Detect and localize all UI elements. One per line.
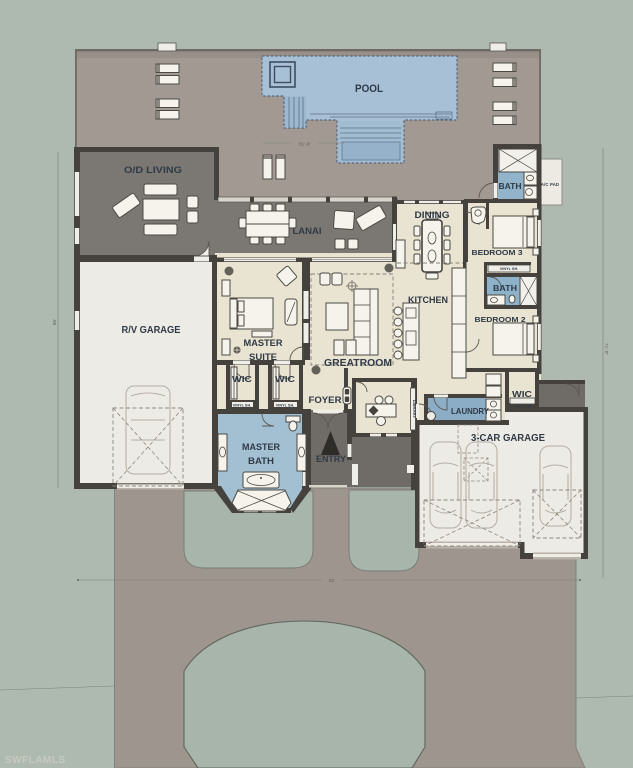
svg-text:LAUNDRY: LAUNDRY [451, 406, 489, 416]
svg-text:R/V GARAGE: R/V GARAGE [122, 325, 181, 336]
svg-text:MASTER: MASTER [244, 338, 283, 349]
svg-text:71'-8": 71'-8" [603, 343, 609, 356]
svg-text:POOL: POOL [355, 83, 383, 95]
svg-text:DINING: DINING [415, 210, 450, 220]
svg-text:WIC: WIC [232, 375, 252, 384]
svg-text:BEDROOM 3: BEDROOM 3 [472, 248, 523, 257]
svg-text:SUITE: SUITE [249, 352, 277, 363]
svg-text:LIBRARY: LIBRARY [412, 400, 417, 419]
svg-text:LANAI: LANAI [293, 226, 322, 236]
svg-text:SWFLAMLS: SWFLAMLS [5, 755, 66, 766]
svg-text:BATH: BATH [248, 456, 274, 467]
svg-text:91': 91' [329, 578, 335, 584]
svg-text:BATH: BATH [493, 283, 517, 293]
svg-text:85': 85' [52, 319, 58, 325]
svg-text:MASTER: MASTER [242, 442, 280, 453]
svg-text:WIC: WIC [275, 375, 295, 384]
svg-text:BEDROOM 2: BEDROOM 2 [475, 315, 526, 324]
svg-text:3-CAR GARAGE: 3-CAR GARAGE [471, 433, 545, 444]
svg-text:VINYL SH.: VINYL SH. [500, 267, 519, 271]
svg-text:O/D LIVING: O/D LIVING [124, 165, 182, 175]
svg-text:BATH: BATH [499, 181, 522, 191]
svg-text:VINYL SH.: VINYL SH. [233, 404, 252, 408]
svg-text:WIC: WIC [512, 390, 532, 399]
svg-text:VINYL SH.: VINYL SH. [514, 405, 533, 409]
svg-text:KITCHEN: KITCHEN [408, 295, 448, 306]
svg-text:GREATROOM: GREATROOM [324, 358, 392, 369]
svg-text:81'-8": 81'-8" [299, 142, 312, 148]
svg-text:VINYL SH.: VINYL SH. [276, 404, 295, 408]
svg-text:A/C PAD: A/C PAD [541, 182, 559, 187]
svg-text:FOYER: FOYER [309, 395, 342, 406]
svg-text:ENTRY: ENTRY [316, 454, 347, 465]
